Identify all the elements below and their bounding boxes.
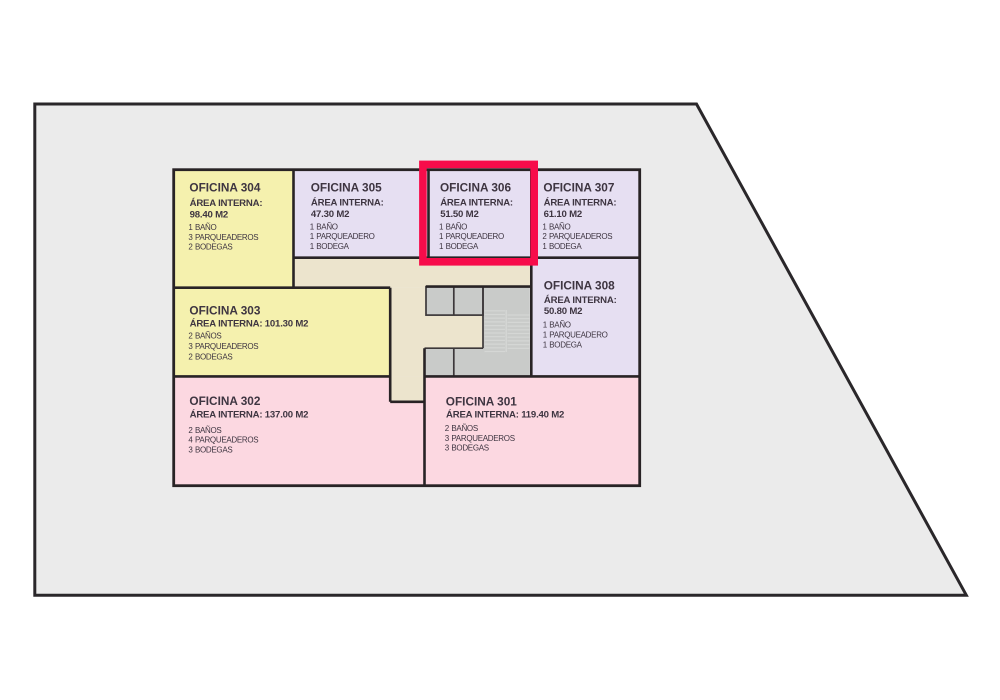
svg-text:OFICINA 303: OFICINA 303 (189, 304, 260, 318)
svg-text:47.30 M2: 47.30 M2 (311, 209, 349, 220)
svg-text:OFICINA 302: OFICINA 302 (189, 394, 260, 408)
svg-text:50.80 M2: 50.80 M2 (544, 306, 582, 317)
svg-text:3 BODEGAS: 3 BODEGAS (445, 444, 489, 453)
svg-text:98.40 M2: 98.40 M2 (190, 210, 228, 221)
svg-text:ÁREA INTERNA:: ÁREA INTERNA: (544, 294, 617, 306)
svg-text:4 PARQUEADEROS: 4 PARQUEADEROS (188, 436, 258, 445)
svg-text:1 BODEGA: 1 BODEGA (310, 242, 350, 251)
svg-text:51.50 M2: 51.50 M2 (440, 209, 478, 220)
svg-text:2 BAÑOS: 2 BAÑOS (188, 332, 221, 341)
svg-text:OFICINA 306: OFICINA 306 (440, 180, 511, 194)
svg-text:1 BODEGA: 1 BODEGA (439, 242, 479, 251)
svg-text:ÁREA INTERNA:: ÁREA INTERNA: (440, 197, 513, 209)
svg-text:2 BAÑOS: 2 BAÑOS (188, 426, 221, 435)
svg-text:3 BODEGAS: 3 BODEGAS (188, 445, 232, 454)
svg-text:ÁREA INTERNA: 119.40 M2: ÁREA INTERNA: 119.40 M2 (446, 409, 564, 421)
svg-text:1 BODEGA: 1 BODEGA (543, 341, 583, 350)
svg-text:1 BAÑO: 1 BAÑO (542, 222, 570, 231)
svg-text:2 BODEGAS: 2 BODEGAS (188, 353, 232, 362)
svg-text:ÁREA INTERNA: 137.00 M2: ÁREA INTERNA: 137.00 M2 (190, 409, 309, 421)
svg-text:61.10 M2: 61.10 M2 (544, 209, 582, 220)
svg-text:OFICINA 307: OFICINA 307 (543, 180, 614, 194)
svg-text:3 PARQUEADEROS: 3 PARQUEADEROS (445, 434, 515, 443)
svg-text:1 PARQUEADERO: 1 PARQUEADERO (543, 331, 608, 340)
svg-text:1 PARQUEADERO: 1 PARQUEADERO (439, 232, 504, 241)
svg-text:1 BODEGA: 1 BODEGA (542, 242, 582, 251)
svg-text:1 PARQUEADERO: 1 PARQUEADERO (310, 232, 375, 241)
svg-text:ÁREA INTERNA:: ÁREA INTERNA: (311, 197, 384, 209)
svg-text:OFICINA 305: OFICINA 305 (311, 180, 382, 194)
svg-text:OFICINA 308: OFICINA 308 (544, 278, 615, 292)
svg-text:1 BAÑO: 1 BAÑO (439, 222, 467, 231)
svg-text:3 PARQUEADEROS: 3 PARQUEADEROS (188, 342, 258, 351)
svg-text:2 PARQUEADEROS: 2 PARQUEADEROS (542, 232, 612, 241)
svg-text:ÁREA INTERNA:: ÁREA INTERNA: (190, 197, 263, 209)
svg-text:1 BAÑO: 1 BAÑO (543, 320, 571, 329)
svg-text:2 BAÑOS: 2 BAÑOS (445, 424, 478, 433)
svg-text:2 BODEGAS: 2 BODEGAS (188, 243, 232, 252)
svg-text:OFICINA 301: OFICINA 301 (446, 395, 517, 409)
svg-text:OFICINA 304: OFICINA 304 (189, 181, 260, 195)
svg-text:1 BAÑO: 1 BAÑO (188, 223, 216, 232)
svg-text:3 PARQUEADEROS: 3 PARQUEADEROS (188, 233, 258, 242)
svg-text:ÁREA INTERNA: 101.30 M2: ÁREA INTERNA: 101.30 M2 (190, 318, 309, 330)
svg-text:1 BAÑO: 1 BAÑO (310, 222, 338, 231)
svg-text:ÁREA INTERNA:: ÁREA INTERNA: (544, 197, 617, 209)
